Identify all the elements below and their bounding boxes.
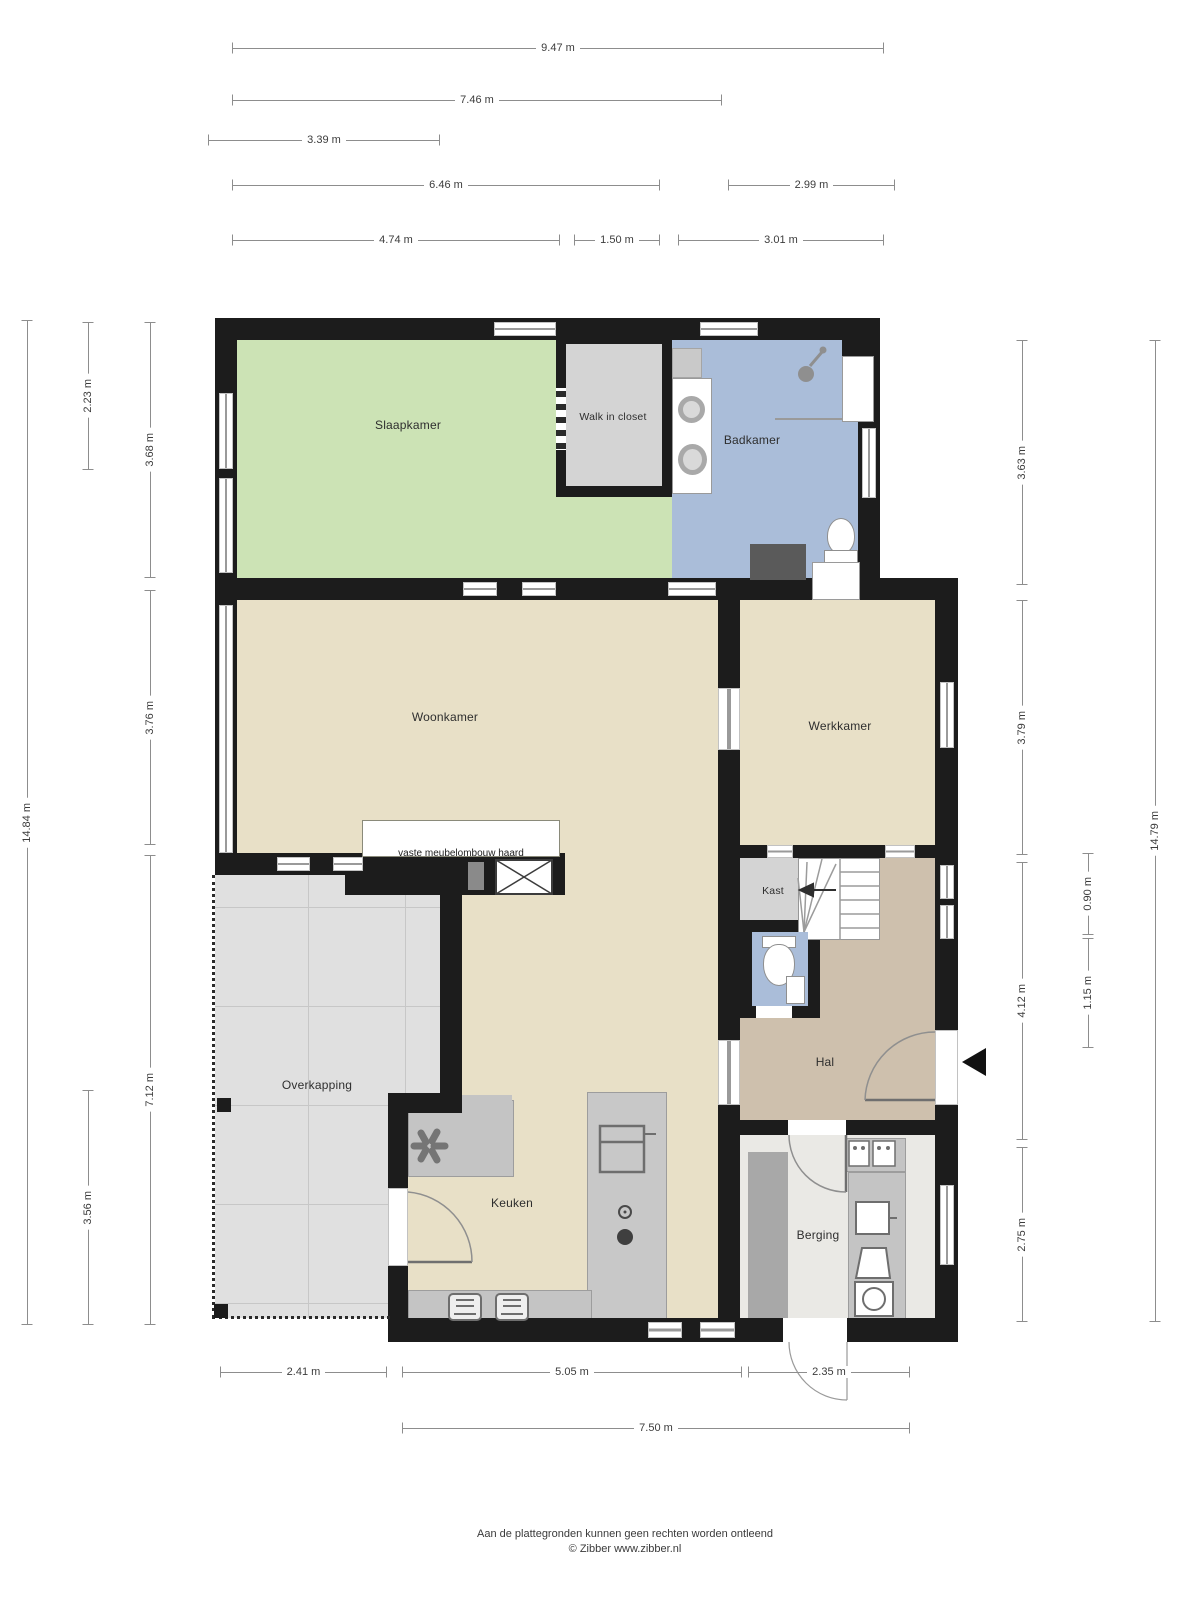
keuken-counter-bottom — [408, 1290, 592, 1320]
dim-right-115: 1.15 m — [1081, 938, 1095, 1048]
shower-tray — [842, 356, 874, 422]
label-badkamer: Badkamer — [724, 433, 780, 447]
window-divider-2 — [522, 582, 556, 596]
badkamer-cabinet-small — [672, 348, 702, 378]
dim-right-379: 3.79 m — [1015, 600, 1029, 855]
window-left-woonkamer — [219, 605, 233, 853]
dim-left-223: 2.23 m — [81, 322, 95, 470]
dim-bottom-750: 7.50 m — [402, 1421, 910, 1435]
overkapping-dotted-border-left — [212, 875, 215, 1318]
badkamer-toilet-bowl — [827, 518, 855, 554]
hal-mini-counter — [846, 1138, 906, 1172]
dim-top-299: 2.99 m — [728, 178, 895, 192]
overkapping-post-mid — [217, 1098, 231, 1112]
dim-right-275: 2.75 m — [1015, 1147, 1029, 1322]
footer-line1: Aan de plattegronden kunnen geen rechten… — [25, 1528, 1200, 1540]
overkapping-post-corner — [214, 1304, 228, 1318]
window-right-berging — [940, 1185, 954, 1265]
dim-right-412: 4.12 m — [1015, 862, 1029, 1140]
door-opening-front — [935, 1030, 958, 1105]
window-right-niche-1 — [940, 865, 954, 899]
fireplace-box: vaste meubelombouw haard — [362, 820, 560, 857]
footer-line2: © Zibber www.zibber.nl — [25, 1543, 1200, 1555]
dim-right-363: 3.63 m — [1015, 340, 1029, 585]
window-right-badkamer — [862, 428, 876, 498]
washbasin-2 — [678, 444, 707, 475]
window-kastband-2 — [885, 845, 915, 858]
dim-top-746: 7.46 m — [232, 93, 722, 107]
dim-top-646: 6.46 m — [232, 178, 660, 192]
dim-left-356: 3.56 m — [81, 1090, 95, 1325]
dim-top-947: 9.47 m — [232, 41, 884, 55]
label-werkkamer: Werkkamer — [809, 719, 872, 733]
door-opening-hal-berging — [788, 1120, 846, 1135]
badkamer-niche-white — [812, 562, 860, 600]
window-bottom-2 — [700, 1322, 735, 1338]
dim-bottom-241: 2.41 m — [220, 1365, 387, 1379]
window-left-slaapkamer-1 — [219, 393, 233, 469]
window-right-niche-2 — [940, 905, 954, 939]
berging-wardrobe — [748, 1152, 788, 1318]
door-opening-toilet — [756, 1006, 792, 1018]
stairs-box — [798, 858, 880, 940]
door-opening-keuken — [388, 1188, 408, 1266]
keuken-island — [587, 1092, 667, 1320]
badkamer-dark-unit — [750, 544, 806, 580]
floor-plan-page: vaste meubelombouw haard — [0, 0, 1200, 1600]
dim-top-339: 3.39 m — [208, 133, 440, 147]
label-hal: Hal — [816, 1055, 835, 1069]
label-keuken: Keuken — [491, 1196, 533, 1210]
label-woonkamer: Woonkamer — [412, 710, 478, 724]
window-left-slaapkamer-2 — [219, 478, 233, 573]
berging-counter — [848, 1172, 906, 1320]
room-keuken-floor-upper — [462, 875, 718, 1095]
window-kastband-1 — [767, 845, 793, 858]
label-slaapkamer: Slaapkamer — [375, 418, 441, 432]
wall-keuken-left-mid — [388, 1113, 408, 1188]
fireplace-label: vaste meubelombouw haard — [398, 848, 524, 857]
dim-left-376: 3.76 m — [143, 590, 157, 845]
entrance-arrow-icon — [962, 1048, 986, 1076]
dim-right-090: 0.90 m — [1081, 853, 1095, 935]
chimney-flue — [468, 862, 484, 890]
label-overkapping: Overkapping — [282, 1078, 352, 1092]
dim-left-712: 7.12 m — [143, 855, 157, 1325]
dim-top-150: 1.50 m — [574, 233, 660, 247]
window-bottom-1 — [648, 1322, 682, 1338]
window-overkapping-wall-2 — [333, 857, 363, 871]
window-divider-1 — [463, 582, 497, 596]
wall-keuken-jog — [388, 1093, 462, 1113]
wall-keuken-left-upper — [440, 875, 462, 1095]
dim-left-1484: 14.84 m — [20, 320, 34, 1325]
door-opening-berging-outside — [783, 1318, 847, 1342]
toilet-sink — [786, 976, 805, 1004]
window-right-werkkamer — [940, 682, 954, 748]
dim-left-368: 3.68 m — [143, 322, 157, 578]
label-berging: Berging — [797, 1228, 840, 1242]
dim-right-1479: 14.79 m — [1148, 340, 1162, 1322]
dim-bottom-505: 5.05 m — [402, 1365, 742, 1379]
dim-top-474: 4.74 m — [232, 233, 560, 247]
overkapping-dotted-border-bottom — [212, 1316, 390, 1319]
opening-badkamer-woonkamer — [668, 582, 716, 596]
window-top-badkamer — [700, 322, 758, 336]
wall-keuken-left-lower — [388, 1266, 408, 1318]
label-kast: Kast — [762, 885, 784, 897]
dim-top-301: 3.01 m — [678, 233, 884, 247]
footer-disclaimer: Aan de plattegronden kunnen geen rechten… — [25, 1528, 1200, 1555]
opening-woonkamer-hal — [718, 1040, 740, 1105]
washbasin-1 — [678, 396, 705, 423]
keuken-counter-corner — [462, 1095, 512, 1115]
label-walk-in-closet: Walk in closet — [579, 411, 646, 423]
dim-bottom-235: 2.35 m — [748, 1365, 910, 1379]
sliding-door-woonkamer-werkkamer — [718, 688, 740, 750]
wic-dashed-wall — [556, 388, 566, 450]
window-overkapping-wall-1 — [277, 857, 310, 871]
window-top-slaapkamer — [494, 322, 556, 336]
